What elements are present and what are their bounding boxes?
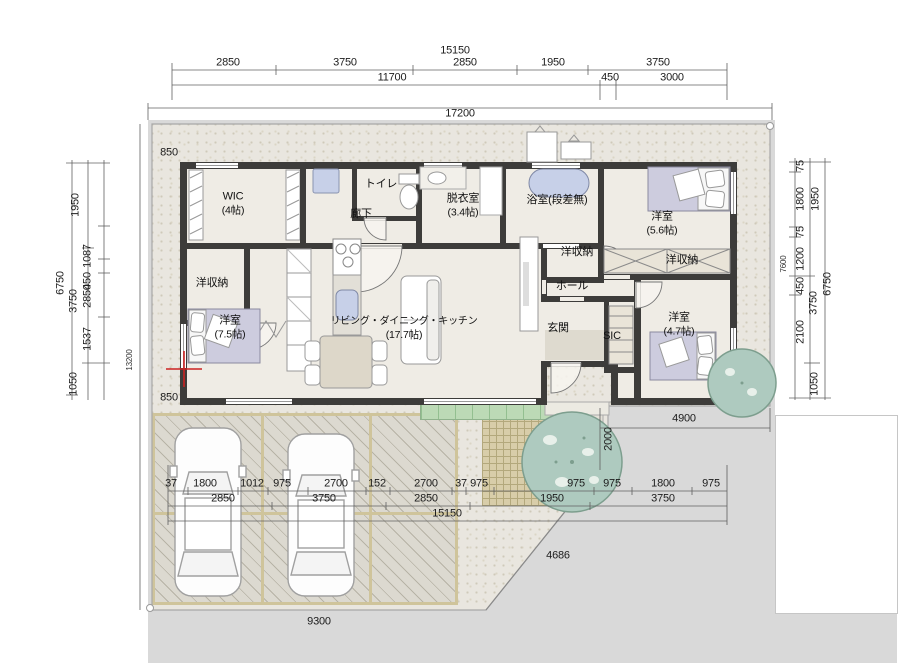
- room-label-bedroom-7-5: 洋室(7.5帖): [215, 315, 246, 342]
- tree-icon: [708, 349, 776, 417]
- room-label-wic: WIC(4帖): [222, 191, 245, 218]
- dim-label: 1050: [810, 372, 821, 396]
- toilet-icon: [400, 185, 418, 209]
- bed-icon: [650, 332, 716, 380]
- dim-label: 17200: [445, 109, 475, 120]
- dim-label: 37: [165, 479, 177, 490]
- dim-label: 1800: [193, 479, 217, 490]
- dim-label: 75: [796, 160, 807, 172]
- dim-label: 2850: [211, 494, 235, 505]
- washing-machine-icon: [313, 169, 339, 193]
- dim-label: 1800: [651, 479, 675, 490]
- dim-label: 9300: [307, 617, 331, 628]
- dim-label: 4900: [672, 414, 696, 425]
- dim-label: 2700: [324, 479, 348, 490]
- dim-label: 13200: [126, 349, 134, 370]
- tv-icon: [523, 262, 529, 306]
- dim-label: 2000: [604, 427, 615, 451]
- dim-label: 11700: [378, 73, 407, 84]
- dim-label: 1950: [540, 494, 564, 505]
- dim-label: 3750: [333, 58, 357, 69]
- outdoor-unit-icon: [527, 126, 591, 162]
- dim-label: 75: [796, 226, 807, 238]
- dim-label: 15150: [432, 509, 462, 520]
- dim-label: 3750: [651, 494, 675, 505]
- room-label-hallway: 廊下: [350, 208, 372, 222]
- dim-label: 850: [160, 393, 178, 404]
- dim-label: 3750: [809, 291, 820, 315]
- dim-label: 1537: [83, 327, 94, 351]
- dim-label: 3750: [646, 58, 670, 69]
- room-label-toilet: トイレ: [365, 178, 397, 192]
- dim-label: 4686: [546, 551, 570, 562]
- dim-label: 1087: [83, 244, 94, 268]
- room-label-hall: ホール: [556, 280, 588, 294]
- dim-label: 975: [567, 479, 585, 490]
- dim-label: 3750: [69, 289, 80, 313]
- dim-label: 1800: [796, 187, 807, 211]
- car-icon: [283, 434, 359, 596]
- dim-label: 2100: [796, 320, 807, 344]
- car-icon: [170, 428, 246, 596]
- room-label-closet: 洋収納: [561, 246, 593, 260]
- room-label-laundry: 脱衣室(3.4帖): [447, 193, 479, 220]
- room-label-sic: SIC: [603, 330, 621, 344]
- survey-point-icon: [147, 605, 154, 612]
- cabinet-icon: [480, 167, 502, 215]
- dim-label: 1950: [541, 58, 565, 69]
- dim-label: 450: [601, 73, 619, 84]
- room-label-bath: 浴室(段差無): [527, 194, 588, 208]
- dim-label: 6750: [823, 272, 834, 296]
- dim-label: 975: [702, 479, 720, 490]
- dim-label: 152: [368, 479, 386, 490]
- dim-label: 1200: [796, 247, 807, 271]
- dim-label: 2850: [216, 58, 240, 69]
- dim-label: 1950: [71, 193, 82, 217]
- survey-point-icon: [767, 123, 774, 130]
- dim-label: 2700: [414, 479, 438, 490]
- room-label-closet: 洋収納: [196, 277, 228, 291]
- dim-label: 2850: [414, 494, 438, 505]
- dim-label: 2850: [83, 284, 94, 308]
- dim-label: 975: [603, 479, 621, 490]
- room-label-bedroom-4-7: 洋室(4.7帖): [664, 312, 695, 339]
- room-label-bedroom-5-6: 洋室(5.6帖): [647, 211, 678, 238]
- floor-plan-canvas: 15150 2850 3750 2850 1950 3750 11700 450…: [0, 0, 900, 663]
- dim-label: 2850: [453, 58, 477, 69]
- dim-label: 450: [796, 277, 807, 295]
- room-label-ldk: リビング・ダイニング・キッチン(17.7帖): [331, 316, 478, 342]
- dim-label: 975: [470, 479, 488, 490]
- dim-label: 1950: [811, 187, 822, 211]
- dim-label: 1050: [69, 372, 80, 396]
- dim-label: 7600: [780, 256, 788, 273]
- dim-label: 1012: [240, 479, 264, 490]
- bed-icon: [648, 167, 730, 211]
- dim-label: 850: [160, 148, 178, 159]
- room-label-closet: 洋収納: [666, 254, 698, 268]
- dim-label: 6750: [56, 271, 67, 295]
- bathtub-icon: [529, 169, 589, 197]
- dim-label: 37: [455, 479, 467, 490]
- room-label-entrance: 玄関: [547, 322, 569, 336]
- dim-label: 975: [273, 479, 291, 490]
- dim-label: 3000: [660, 73, 684, 84]
- dim-label: 15150: [440, 46, 470, 57]
- toilet-icon: [399, 174, 419, 184]
- dim-label: 3750: [312, 494, 336, 505]
